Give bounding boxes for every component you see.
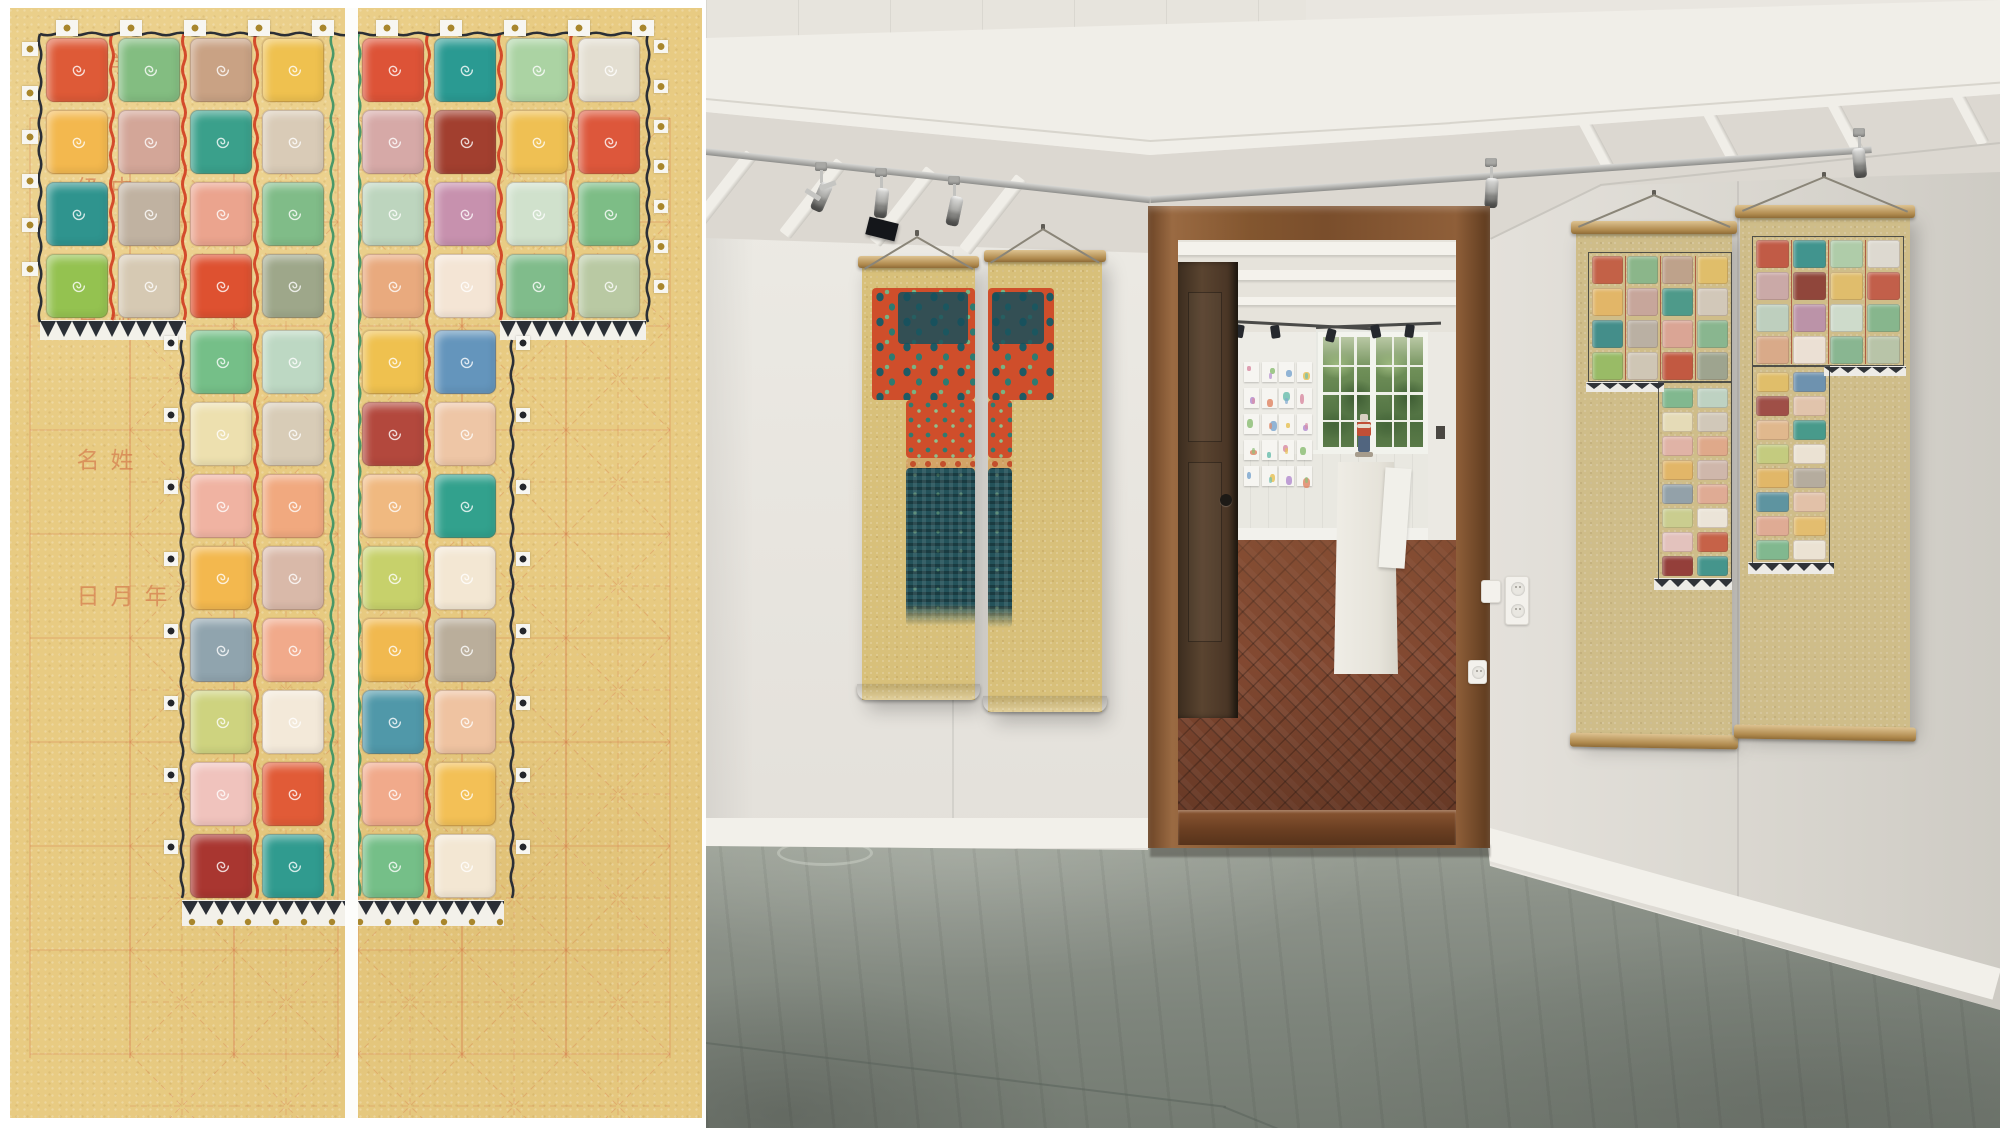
border-tab xyxy=(164,408,178,422)
border-tab xyxy=(654,160,668,173)
border-tab xyxy=(376,20,398,36)
border-tab xyxy=(516,480,530,494)
border-tab xyxy=(516,840,530,854)
stem-outline xyxy=(1752,366,1830,564)
border-tab xyxy=(516,552,530,566)
border-tab xyxy=(654,240,668,253)
border-tab xyxy=(516,624,530,638)
border-tab xyxy=(22,130,38,144)
border-tab xyxy=(248,20,270,36)
border-tab xyxy=(654,120,668,133)
border-tab xyxy=(654,80,668,93)
border-tab xyxy=(654,200,668,213)
border-tab xyxy=(22,86,38,100)
panel-divider-stripe xyxy=(345,0,358,1128)
border-tab xyxy=(632,20,654,36)
border-tab xyxy=(504,20,526,36)
border-tab xyxy=(164,624,178,638)
border-tab xyxy=(22,174,38,188)
border-tab xyxy=(164,840,178,854)
scan-margin xyxy=(0,0,10,1128)
border-tab xyxy=(516,336,530,350)
border-tab xyxy=(22,42,38,56)
border-tab xyxy=(164,696,178,710)
screenshot-root: 学校中级班号姓名年月日 xyxy=(0,0,2000,1128)
quilt-scroll xyxy=(1576,228,1732,740)
scroll-top-dowel xyxy=(1571,221,1737,234)
border-tab xyxy=(164,336,178,350)
fringe-border xyxy=(1824,366,1906,376)
border-tab xyxy=(312,20,334,36)
border-tab xyxy=(184,20,206,36)
border-tab xyxy=(654,280,668,293)
border-tab xyxy=(440,20,462,36)
stem-outline xyxy=(1658,382,1732,580)
scroll-bottom-dowel xyxy=(1570,733,1738,750)
band-outline xyxy=(1588,252,1732,382)
quilt-scroll xyxy=(1740,212,1910,732)
border-tab xyxy=(22,218,38,232)
border-tab xyxy=(164,480,178,494)
fringe-border xyxy=(1586,382,1664,392)
scan-margin xyxy=(0,0,706,8)
artwork-scan: 学校中级班号姓名年月日 xyxy=(0,0,706,1128)
quilt-scroll-pair xyxy=(706,0,2000,1128)
border-tab xyxy=(164,552,178,566)
gallery-photo xyxy=(706,0,2000,1128)
border-tab xyxy=(164,768,178,782)
scan-margin xyxy=(0,1118,706,1128)
border-tab xyxy=(22,262,38,276)
border-tab xyxy=(516,696,530,710)
border-tab xyxy=(516,408,530,422)
border-tab xyxy=(120,20,142,36)
border-tab xyxy=(56,20,78,36)
scroll-top-dowel xyxy=(1735,205,1915,218)
border-tab xyxy=(654,40,668,53)
border-tab xyxy=(516,768,530,782)
border-tab xyxy=(568,20,590,36)
scroll-bottom-dowel xyxy=(1734,724,1916,741)
band-outline xyxy=(1752,236,1904,366)
